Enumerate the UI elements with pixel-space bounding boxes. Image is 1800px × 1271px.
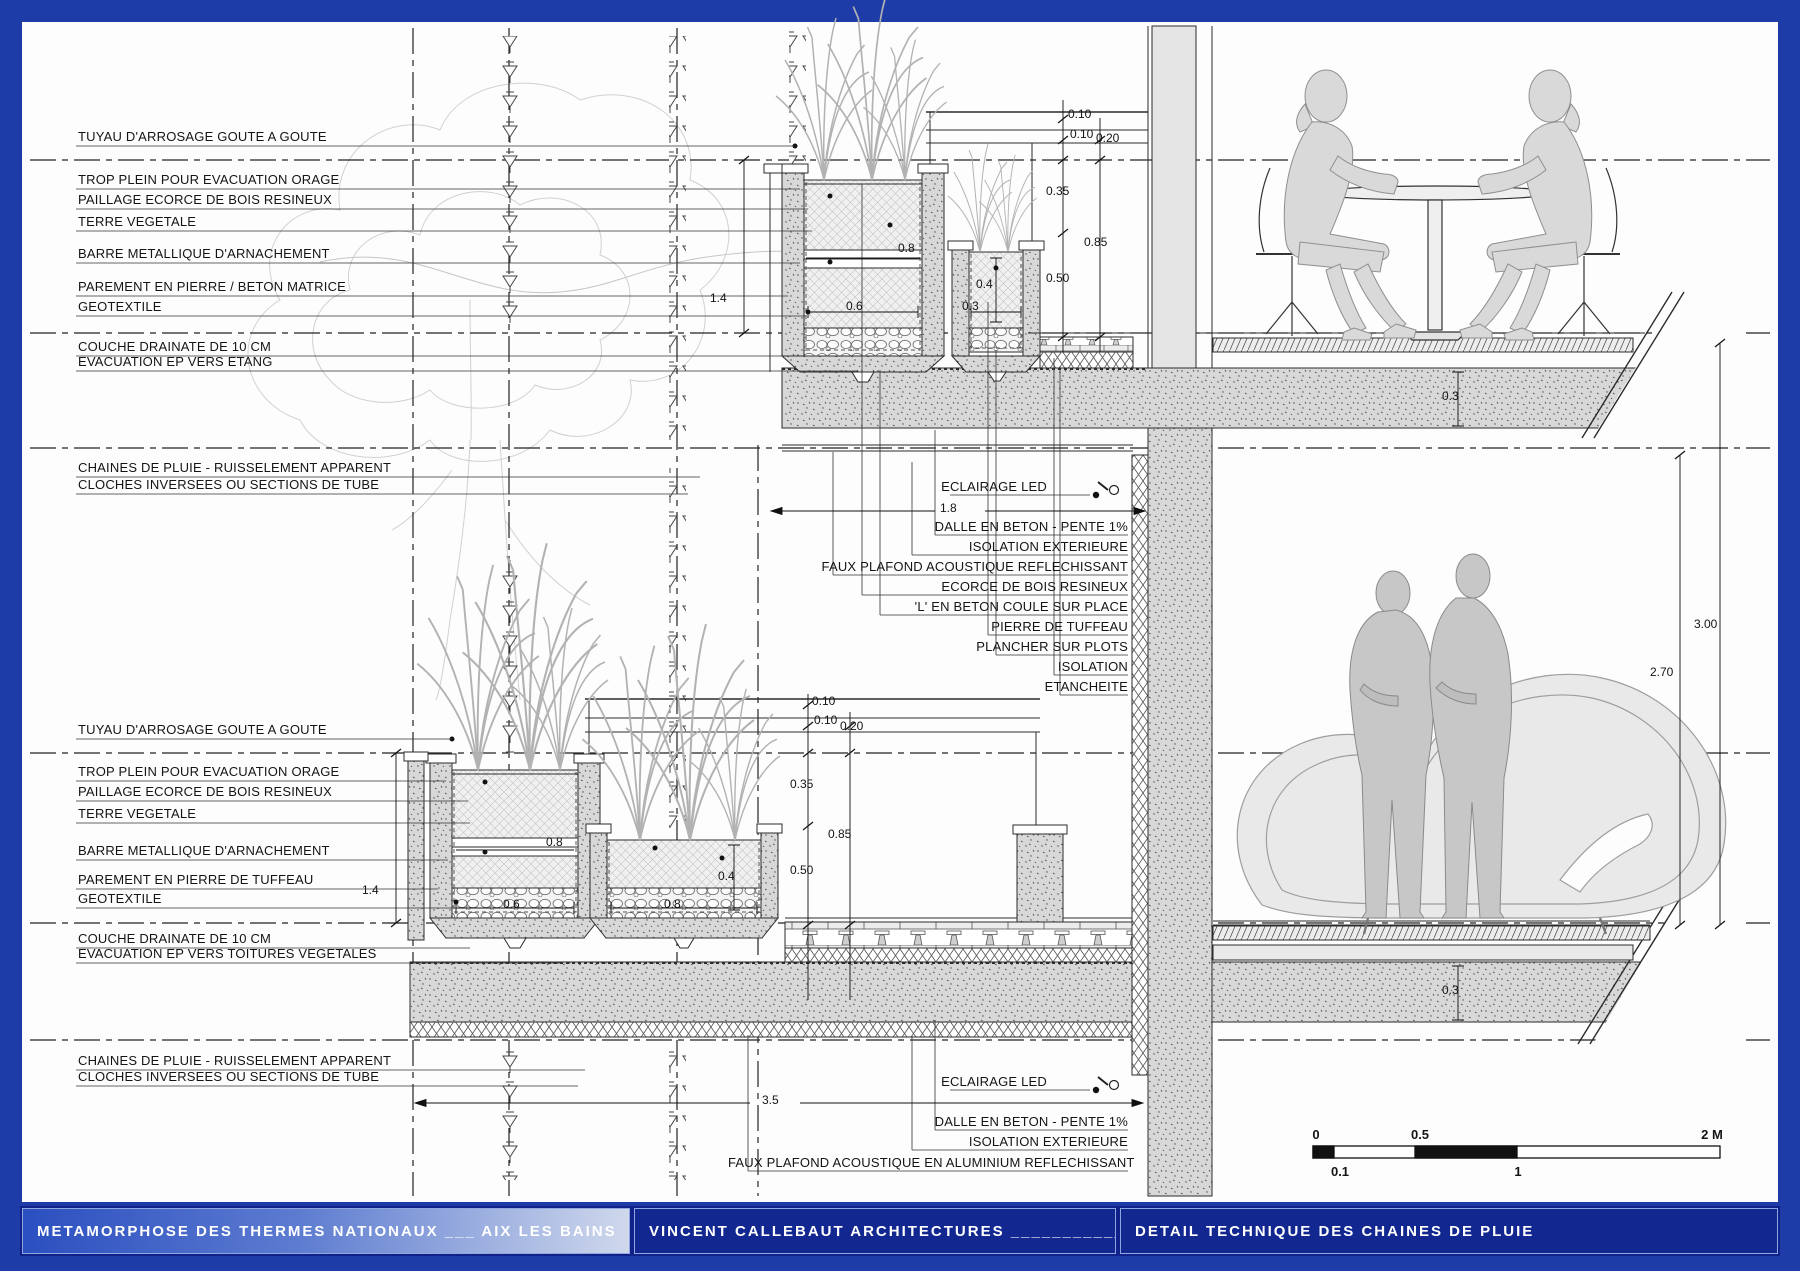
dim-rail-gap1-lower: 0.10 [812,695,835,707]
project-title: METAMORPHOSE DES THERMES NATIONAUX ___ A… [37,1223,617,1240]
label-faux-plafond-upper: FAUX PLAFOND ACOUSTIQUE REFLECHISSANT [728,560,1128,573]
sheet-title: DETAIL TECHNIQUE DES CHAINES DE PLUIE [1135,1223,1534,1240]
label-dalle-upper: DALLE EN BETON - PENTE 1% [728,520,1128,533]
dim-08-wide-lower: 0.8 [664,898,681,910]
dim-050-lower: 0.50 [790,864,813,876]
dim-14-lower: 1.4 [362,884,379,896]
label-couche-upper: COUCHE DRAINATE DE 10 CM [78,340,271,353]
label-etancheite: ETANCHEITE [728,680,1128,693]
dim-035-lower: 0.35 [790,778,813,790]
label-faux-plafond-lower: FAUX PLAFOND ACOUSTIQUE EN ALUMINIUM REF… [728,1156,1128,1169]
scale-0: 0 [1312,1127,1319,1142]
label-chaines-lower: CHAINES DE PLUIE - RUISSELEMENT APPARENT [78,1054,391,1067]
label-l-beton: 'L' EN BETON COULE SUR PLACE [728,600,1128,613]
dim-08-band-lower: 0.8 [546,836,563,848]
titleblock-firm: VINCENT CALLEBAUT ARCHITECTURES ________… [634,1208,1116,1254]
label-trop-plein-lower: TROP PLEIN POUR EVACUATION ORAGE [78,765,339,778]
dim-slab-upper: 0.3 [1442,390,1459,402]
dim-085-upper: 0.85 [1084,236,1107,248]
dim-04-lower: 0.4 [718,870,735,882]
label-geotextile-upper: GEOTEXTILE [78,300,162,313]
label-evacuation-upper: EVACUATION EP VERS ETANG [78,355,273,368]
scale-01: 0.1 [1331,1164,1349,1179]
dim-rail-gap2-upper: 0.10 [1070,128,1093,140]
dim-06-upper: 0.6 [846,300,863,312]
core-wall [1132,26,1212,1196]
label-chaines-upper: CHAINES DE PLUIE - RUISSELEMENT APPARENT [78,461,391,474]
label-paillage-lower: PAILLAGE ECORCE DE BOIS RESINEUX [78,785,332,798]
label-isolation: ISOLATION [728,660,1128,673]
label-pierre-tuffeau: PIERRE DE TUFFEAU [728,620,1128,633]
firm-name: VINCENT CALLEBAUT ARCHITECTURES ________… [649,1223,1116,1240]
dim-08-upper: 0.8 [898,242,915,254]
dim-rail-gap1-upper: 0.10 [1068,108,1091,120]
dim-035-upper: 0.35 [1046,185,1069,197]
people-upper [1256,70,1620,340]
label-tuyau-upper: TUYAU D'ARROSAGE GOUTE A GOUTE [78,130,327,143]
label-plancher-plots: PLANCHER SUR PLOTS [728,640,1128,653]
label-terre-lower: TERRE VEGETALE [78,807,196,820]
label-cloches-upper: CLOCHES INVERSEES OU SECTIONS DE TUBE [78,478,379,491]
dim-35-lower: 3.5 [762,1094,779,1106]
scale-1: 1 [1514,1164,1521,1179]
people-lower [1237,554,1725,934]
label-ecorce: ECORCE DE BOIS RESINEUX [728,580,1128,593]
dim-18-upper: 1.8 [940,502,957,514]
planter-lower-big [426,754,604,948]
upper-section [764,112,1740,451]
dim-slab-lower: 0.3 [1442,984,1459,996]
label-dalle-lower: DALLE EN BETON - PENTE 1% [728,1115,1128,1128]
label-parement-upper: PAREMENT EN PIERRE / BETON MATRICE [78,280,346,293]
dim-rail-total-upper: 0.20 [1096,132,1119,144]
scale-2m: 2 M [1701,1127,1723,1142]
label-barre-lower: BARRE METALLIQUE D'ARNACHEMENT [78,844,330,857]
label-parement-lower: PAREMENT EN PIERRE DE TUFFEAU [78,873,314,886]
dim-clear-height: 2.70 [1650,666,1673,678]
dim-14-upper: 1.4 [710,292,727,304]
dim-rail-gap2-lower: 0.10 [814,714,837,726]
label-geotextile-lower: GEOTEXTILE [78,892,162,905]
label-isolation-ext-upper: ISOLATION EXTERIEURE [728,540,1128,553]
dim-rail-total-lower: 0.20 [840,720,863,732]
planter-upper-big [778,164,948,382]
label-paillage-upper: PAILLAGE ECORCE DE BOIS RESINEUX [78,193,332,206]
drawing-sheet: TUYAU D'ARROSAGE GOUTE A GOUTE TROP PLEI… [0,0,1800,1271]
label-tuyau-lower: TUYAU D'ARROSAGE GOUTE A GOUTE [78,723,327,736]
dim-050-upper: 0.50 [1046,272,1069,284]
scale-05: 0.5 [1411,1127,1429,1142]
label-evacuation-lower: EVACUATION EP VERS TOITURES VEGETALES [78,947,377,960]
label-eclairage-lower: ECLAIRAGE LED [647,1075,1047,1088]
titleblock-project: METAMORPHOSE DES THERMES NATIONAUX ___ A… [22,1208,630,1254]
label-eclairage-upper: ECLAIRAGE LED [647,480,1047,493]
dim-04-upper: 0.4 [976,278,993,290]
label-isolation-ext-lower: ISOLATION EXTERIEURE [728,1135,1128,1148]
seated-person [1256,70,1416,340]
dim-085-lower: 0.85 [828,828,851,840]
dim-floor-to-floor: 3.00 [1694,618,1717,630]
scale-bar [1313,1146,1720,1158]
label-cloches-lower: CLOCHES INVERSEES OU SECTIONS DE TUBE [78,1070,379,1083]
dim-03-upper: 0.3 [962,300,979,312]
planter-lower-wide [586,824,782,948]
label-trop-plein-upper: TROP PLEIN POUR EVACUATION ORAGE [78,173,339,186]
dim-06-lower: 0.6 [503,898,520,910]
titleblock-sheet: DETAIL TECHNIQUE DES CHAINES DE PLUIE [1120,1208,1778,1254]
label-couche-lower: COUCHE DRAINATE DE 10 CM [78,932,271,945]
label-terre-upper: TERRE VEGETALE [78,215,196,228]
label-barre-upper: BARRE METALLIQUE D'ARNACHEMENT [78,247,330,260]
